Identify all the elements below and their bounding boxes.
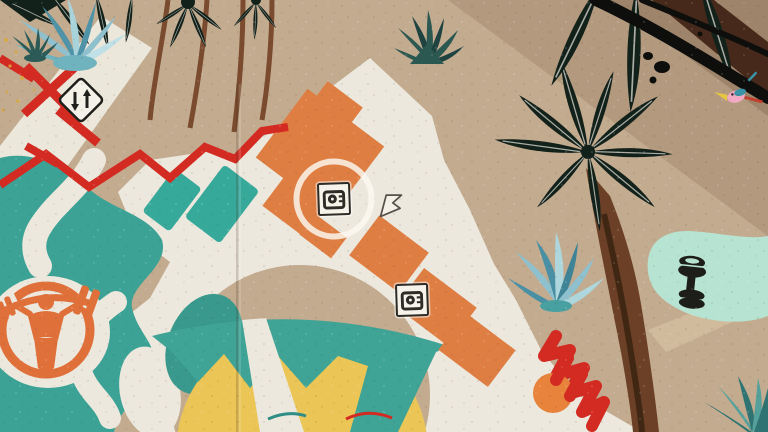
speckle-texture (0, 0, 768, 432)
workbench-marker[interactable] (395, 283, 429, 317)
workbench-marker[interactable] (317, 182, 351, 216)
workbench-icon (319, 184, 349, 214)
paper-crease (236, 84, 241, 432)
map-artwork (0, 0, 768, 432)
game-map (0, 0, 768, 432)
workbench-icon (397, 285, 427, 315)
